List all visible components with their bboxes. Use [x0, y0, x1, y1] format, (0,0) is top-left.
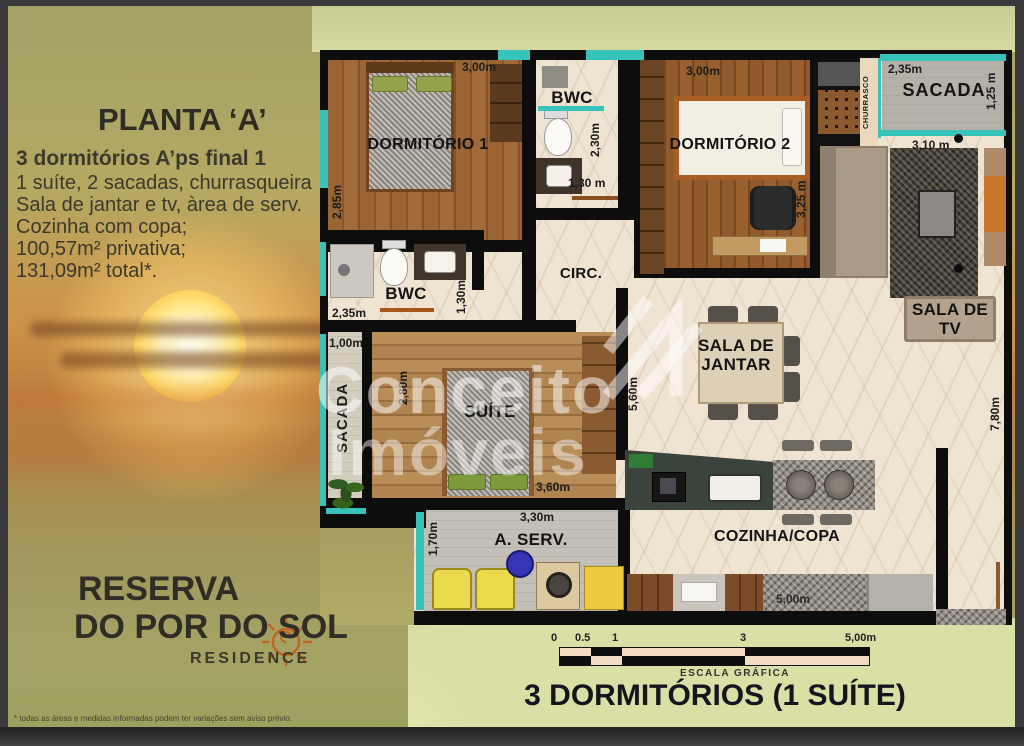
room-label-suite: SUÍTE: [450, 402, 530, 421]
cloud-band: [30, 322, 360, 336]
brand-line-2: DO POR DO SOL: [74, 608, 348, 647]
column-dot: [954, 134, 963, 143]
wall: [320, 320, 576, 332]
dim-sacada-superior-width: 2,35m: [888, 62, 922, 76]
dim-sacada-lateral-width: 1,00m: [329, 336, 363, 350]
window: [416, 512, 424, 610]
window: [880, 130, 1006, 136]
frame-right: [1015, 0, 1024, 746]
watermark-logo-icon: [600, 266, 710, 402]
pale-backdrop-top: [312, 0, 1016, 52]
dining-chair: [708, 402, 738, 420]
room-label-bwc-superior: BWC: [542, 88, 602, 107]
dining-chair: [748, 402, 778, 420]
area-private: 100,57m² privativa;: [16, 238, 186, 261]
area-total: 131,09m² total*.: [16, 260, 157, 283]
window: [320, 242, 326, 296]
frame-left: [0, 0, 8, 746]
washer-door: [546, 572, 572, 598]
window: [880, 54, 1006, 61]
stool-back: [782, 440, 814, 451]
dryer: [584, 566, 624, 610]
feature-line: Sala de jantar e tv, àrea de serv.: [16, 194, 302, 217]
dim-sala-tv-height: 7,80m: [988, 386, 1002, 442]
plant-icon: [326, 468, 366, 514]
room-label-cozinha-copa: COZINHA/COPA: [700, 528, 854, 546]
dim-bwc-superior-height: 2,30m: [588, 112, 602, 168]
basin: [506, 550, 534, 578]
room-label-dormitorio-1: DORMITÓRIO 1: [348, 136, 508, 154]
dim-dormitorio-2-height: 3,25 m: [794, 168, 808, 230]
dim-sacada-superior-depth: 1,25 m: [984, 64, 998, 118]
kitchen-sink: [708, 474, 762, 502]
counter-sink: [681, 582, 717, 602]
disclaimer-text: * todas as áreas e medidas informadas po…: [14, 714, 292, 723]
marketing-slide: PLANTA ‘A’ 3 dormitórios A’ps final 1 1 …: [0, 0, 1024, 746]
grill-icon: [818, 90, 860, 134]
wall: [522, 240, 536, 332]
dim-area-servico-width: 3,30m: [520, 510, 554, 524]
wall: [534, 208, 634, 220]
sun-photo: [134, 290, 246, 402]
cooktop-burner: [660, 478, 676, 494]
wall: [1004, 50, 1012, 625]
sink: [424, 251, 456, 273]
wall: [414, 611, 1012, 625]
dim-dormitorio-2-width: 3,00m: [686, 64, 720, 78]
page-title: PLANTA ‘A’: [98, 102, 267, 138]
plan-type-title: 3 DORMITÓRIOS (1 SUÍTE): [505, 679, 925, 713]
dim-bwc-suite-height: 1,30m: [454, 274, 468, 320]
fridge: [867, 574, 933, 611]
bwc-underline: [538, 106, 604, 111]
wall-granite-segment: [936, 609, 1006, 625]
window: [498, 50, 530, 60]
window: [586, 50, 644, 60]
desk-paper: [760, 239, 786, 252]
room-label-sacada-lateral: SACADA: [334, 376, 351, 460]
desk-chair: [754, 186, 792, 230]
door-leaf: [996, 562, 1000, 609]
dim-dormitorio-1-width: 3,00m: [462, 60, 496, 74]
window: [320, 110, 328, 188]
room-label-churrasco: CHURRASCO: [861, 62, 870, 142]
feature-line: Cozinha com copa;: [16, 216, 187, 239]
wardrobe: [640, 60, 664, 274]
door-swing-mark: [380, 308, 434, 312]
stool: [786, 470, 816, 500]
bed-headboard: [366, 62, 454, 73]
dim-suite-width: 3,60m: [536, 480, 570, 494]
door-swing-mark: [572, 196, 618, 200]
stool-back: [782, 514, 814, 525]
pillow: [448, 474, 486, 490]
countertop-item: [629, 454, 653, 468]
stool: [824, 470, 854, 500]
kitchen-cabinet: [725, 574, 763, 611]
scale-tick-0: 0: [551, 632, 561, 644]
kitchen-cabinet: [627, 574, 673, 611]
shower: [330, 244, 374, 298]
scale-tick-1: 1: [612, 632, 622, 644]
dim-sala-tv-width: 3,10 m: [912, 138, 949, 152]
tv-table: [918, 190, 956, 238]
brand-line-3: RESIDENCE: [190, 650, 310, 668]
scale-tick-5: 5,00m: [845, 632, 891, 644]
room-label-sala-tv: SALA DE TV: [904, 300, 996, 338]
tv-sideboard-shelf: [984, 176, 1006, 232]
scale-tick-3: 3: [740, 632, 750, 644]
room-label-bwc-suite: BWC: [378, 284, 434, 303]
wall: [618, 50, 634, 220]
toilet: [380, 248, 408, 286]
frame-bottom: [0, 727, 1024, 746]
wall: [362, 498, 628, 510]
wall: [936, 448, 948, 611]
column-dot: [954, 264, 963, 273]
room-label-dormitorio-2: DORMITÓRIO 2: [650, 136, 810, 154]
frame-top: [0, 0, 1024, 6]
scale-tick-05: 0.5: [575, 632, 599, 644]
wardrobe: [490, 64, 522, 142]
churrasco-counter: [818, 62, 860, 86]
dining-chair: [782, 336, 800, 366]
shower-head-icon: [338, 264, 350, 276]
pillow: [372, 76, 408, 92]
brand-line-1: RESERVA: [78, 570, 239, 609]
wall: [472, 230, 484, 290]
wall: [522, 50, 536, 252]
dim-suite-height: 2,80m: [396, 366, 410, 410]
room-label-sacada-superior: SACADA: [894, 80, 994, 100]
bathroom-cabinet: [542, 66, 568, 88]
pillow: [416, 76, 452, 92]
sofa-back: [820, 146, 836, 278]
dim-dormitorio-1-height: 2,85m: [330, 168, 344, 236]
toilet: [544, 118, 572, 156]
dim-bwc-suite-width: 2,35m: [332, 306, 366, 320]
stool-back: [820, 440, 852, 451]
pillow: [490, 474, 528, 490]
scale-bar: [559, 647, 870, 666]
dim-bwc-superior-width: 1,30 m: [568, 176, 605, 190]
scale-caption: ESCALA GRÁFICA: [655, 668, 815, 679]
stool-back: [820, 514, 852, 525]
dim-area-servico-height: 1,70m: [426, 516, 440, 562]
room-label-area-servico: A. SERV.: [486, 530, 576, 549]
laundry-basket: [432, 568, 472, 610]
dim-cozinha-width: 5,00m: [776, 592, 810, 606]
feature-line: 1 suíte, 2 sacadas, churrasqueira: [16, 172, 312, 195]
dining-chair: [782, 372, 800, 402]
plan-subtitle: 3 dormitórios A’ps final 1: [16, 147, 266, 171]
laundry-basket: [475, 568, 515, 610]
